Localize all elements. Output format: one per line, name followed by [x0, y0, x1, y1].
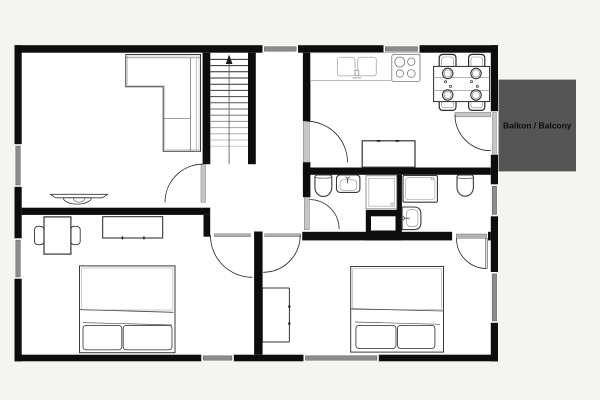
svg-text:Balkon / Balcony: Balkon / Balcony: [503, 120, 572, 130]
